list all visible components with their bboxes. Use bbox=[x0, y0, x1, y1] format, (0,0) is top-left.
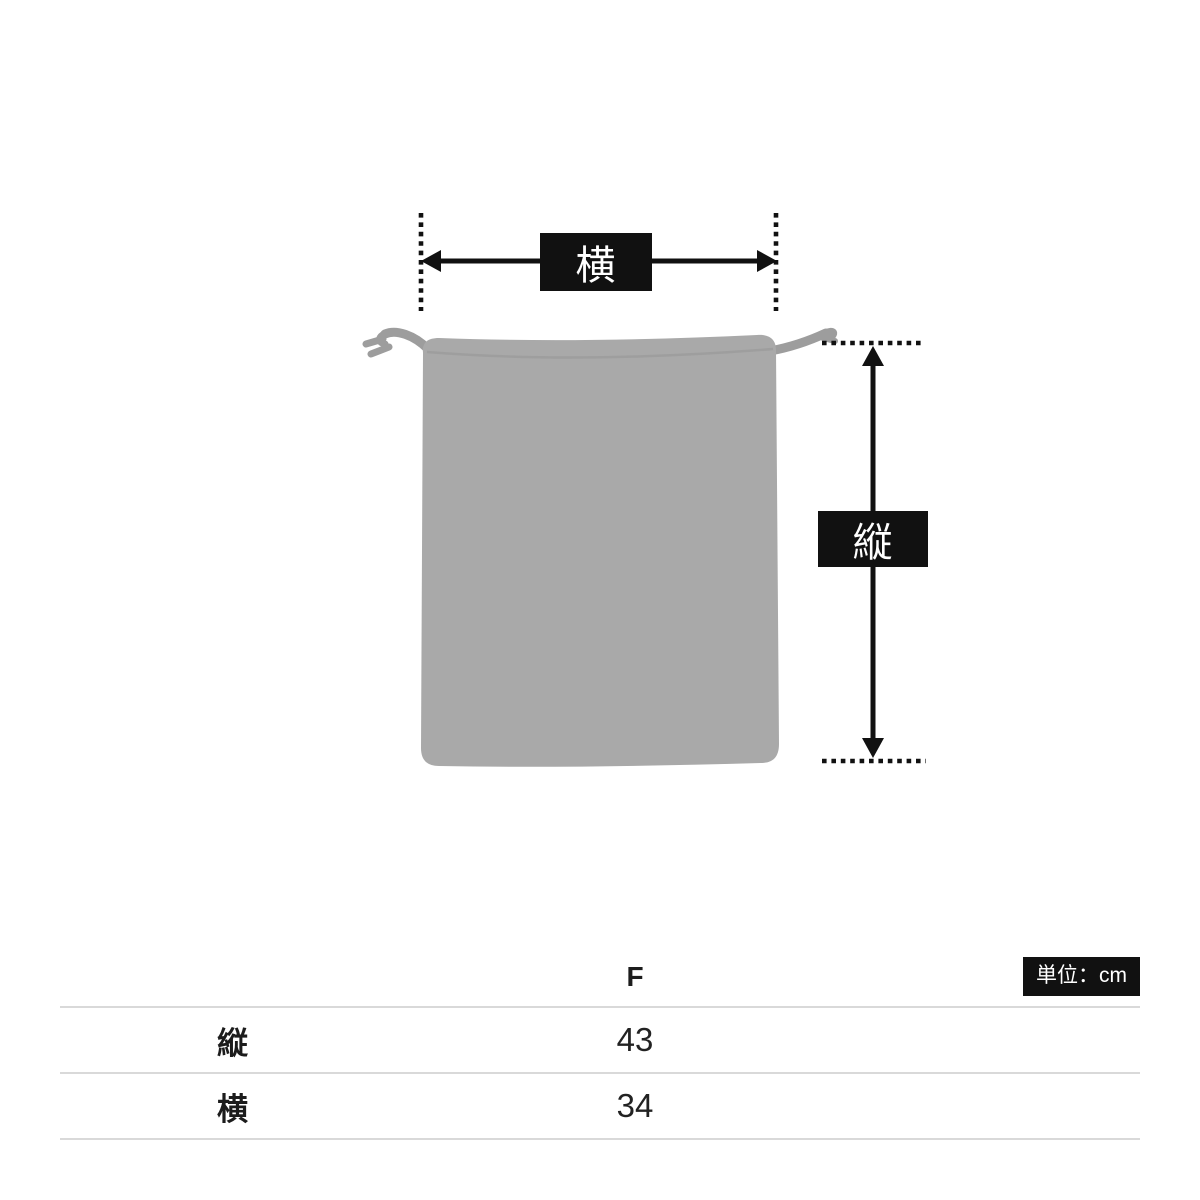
width-dimension-label-text: 横 bbox=[576, 233, 617, 291]
cord-left-end-1 bbox=[366, 339, 383, 344]
height-arrowhead-bottom bbox=[862, 738, 884, 758]
size-chart-page: 横 縦 F 単位：cm 縦 43 横 34 bbox=[0, 0, 1200, 1200]
row-value: 43 bbox=[405, 1021, 865, 1059]
row-value: 34 bbox=[405, 1087, 865, 1125]
unit-badge: 単位：cm bbox=[1023, 957, 1140, 995]
cord-right-end bbox=[823, 338, 835, 341]
unit-badge-cell: 単位：cm bbox=[865, 957, 1140, 995]
size-column-header: F bbox=[405, 961, 865, 993]
width-dimension-label: 横 bbox=[540, 233, 652, 291]
height-dimension-label: 縦 bbox=[818, 511, 928, 567]
table-row-height: 縦 43 bbox=[60, 1008, 1140, 1074]
drawstring-bag-illustration bbox=[366, 331, 835, 766]
drawstring-knot-left bbox=[366, 332, 428, 354]
row-label: 縦 bbox=[60, 1018, 405, 1063]
size-table-header-row: F 単位：cm bbox=[60, 947, 1140, 1008]
bag-body bbox=[421, 335, 779, 767]
height-arrowhead-top bbox=[862, 346, 884, 366]
table-row-width: 横 34 bbox=[60, 1074, 1140, 1140]
cord-right-main bbox=[770, 333, 826, 351]
cord-left-end-2 bbox=[371, 347, 389, 354]
size-table: F 単位：cm 縦 43 横 34 bbox=[60, 947, 1140, 1140]
width-arrowhead-left bbox=[421, 250, 441, 272]
row-label: 横 bbox=[60, 1084, 405, 1129]
height-dimension-label-text: 縦 bbox=[853, 510, 894, 568]
